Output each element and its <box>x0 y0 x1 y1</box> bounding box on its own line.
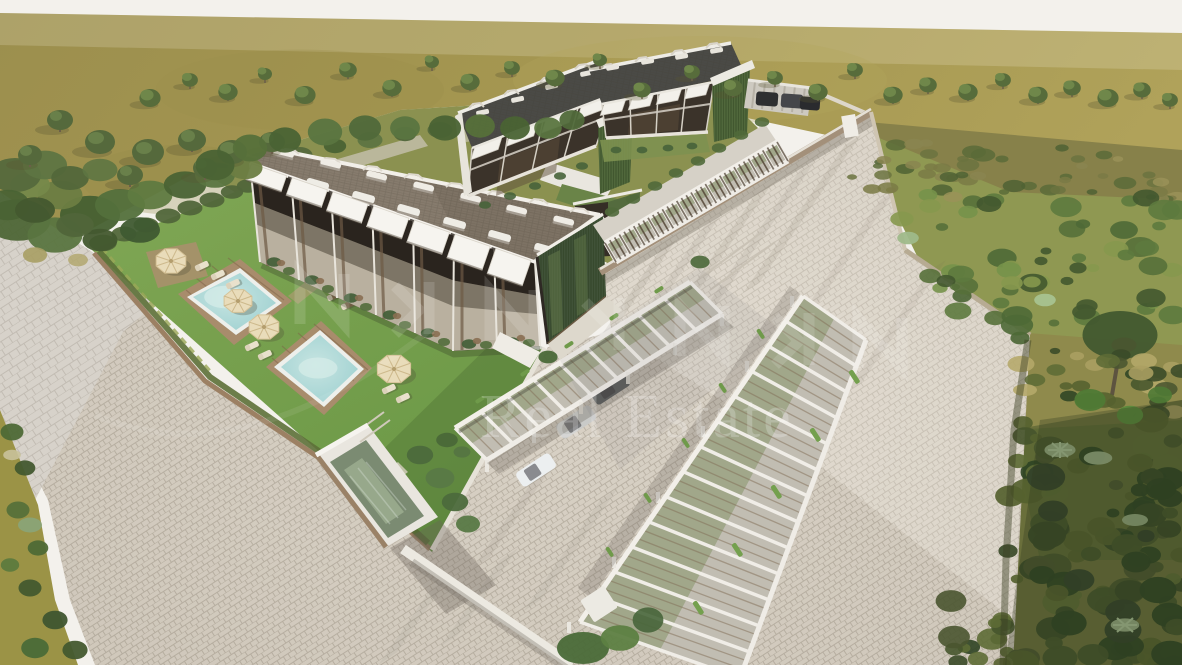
svg-text:Real Estate: Real Estate <box>480 383 794 451</box>
